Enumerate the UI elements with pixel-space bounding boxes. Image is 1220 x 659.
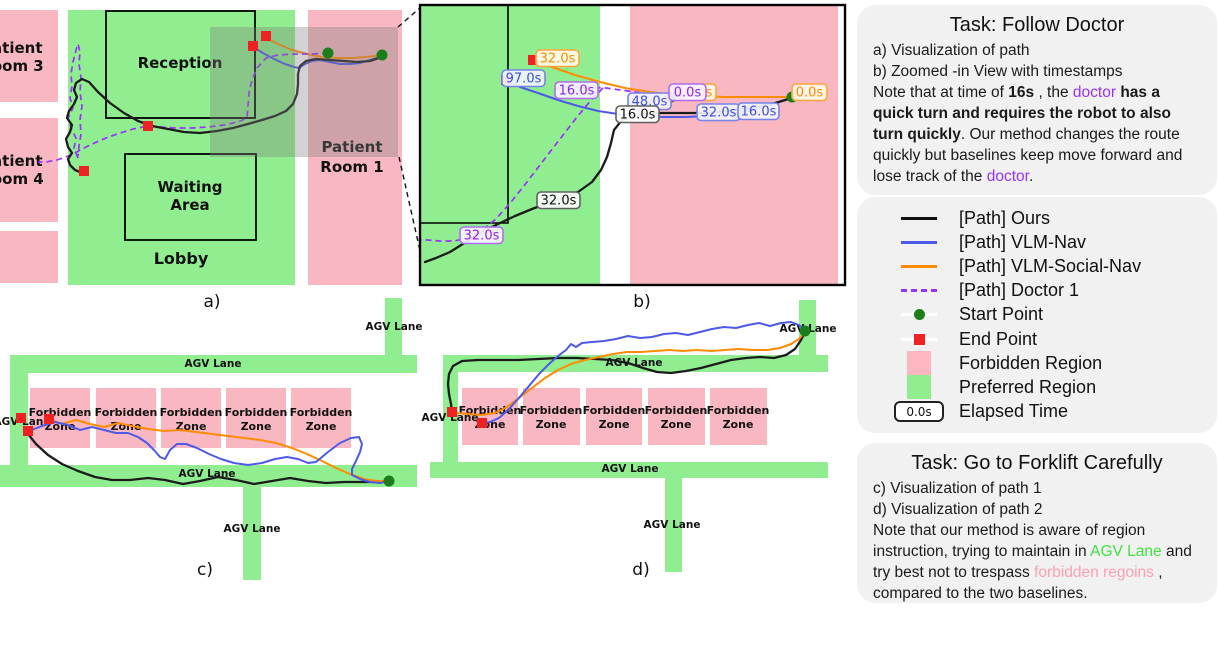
start-point	[377, 50, 388, 61]
room-label: Room 1	[320, 158, 383, 176]
end-point	[23, 426, 33, 436]
svg-text:Forbidden: Forbidden	[645, 404, 708, 417]
legend-item-path-vlm-nav: [Path] VLM-Nav	[857, 230, 1217, 254]
svg-text:Forbidden: Forbidden	[95, 406, 158, 419]
agv-lane-label: AGV Lane	[606, 357, 663, 369]
svg-text:32.0s: 32.0s	[540, 52, 576, 67]
dashed-line-swatch-purple	[901, 289, 937, 292]
svg-text:32.0s: 32.0s	[541, 194, 577, 209]
room-label: Patient	[0, 39, 43, 57]
task2-note: Note that our method is aware of region …	[873, 520, 1201, 604]
timestamp-label: 97.0s	[502, 70, 545, 87]
timestamp-label: 32.0s	[537, 192, 580, 209]
line-swatch-blue	[901, 241, 937, 244]
panel-caption-c: c)	[197, 560, 213, 580]
svg-text:Forbidden: Forbidden	[225, 406, 288, 419]
panel-caption-d: d)	[632, 560, 649, 580]
panel-a: Patient Room 3 Patient Room 4 Reception …	[0, 10, 402, 312]
svg-text:Zone: Zone	[599, 418, 630, 431]
task1-title: Task: Follow Doctor	[867, 14, 1207, 37]
end-point-icon	[914, 334, 925, 345]
start-point	[384, 476, 395, 487]
svg-text:Forbidden: Forbidden	[160, 406, 223, 419]
timestamp-label: 32.0s	[536, 50, 579, 67]
panel-caption-a: a)	[203, 292, 220, 312]
room-label: Patient	[0, 152, 43, 170]
end-point	[248, 41, 258, 51]
legend-item-path-ours: [Path] Ours	[857, 206, 1217, 230]
legend-card: [Path] Ours [Path] VLM-Nav [Path] VLM-So…	[857, 197, 1217, 433]
timestamp-label: 32.0s	[460, 227, 503, 244]
timestamp-label: 32.0s	[697, 104, 740, 121]
task1-card: Task: Follow Doctor a) Visualization of …	[857, 5, 1217, 195]
task1-line-b: b) Zoomed -in View with timestamps	[873, 61, 1201, 82]
timestamp-label: 0.0s	[669, 84, 706, 101]
end-point	[477, 418, 487, 428]
svg-text:Zone: Zone	[241, 420, 272, 433]
timestamp-label: 16.0s	[616, 106, 659, 123]
svg-text:32.0s: 32.0s	[701, 106, 737, 121]
legend-item-path-doctor: [Path] Doctor 1	[857, 279, 1217, 303]
end-point	[44, 414, 54, 424]
timestamp-label: 0.0s	[792, 84, 827, 101]
legend-item-end-point: End Point	[857, 327, 1217, 351]
room-label: Room 4	[0, 170, 44, 188]
svg-text:Forbidden: Forbidden	[520, 404, 583, 417]
legend-item-forbidden-region: Forbidden Region	[857, 351, 1217, 375]
agv-lane-label: AGV Lane	[224, 523, 281, 535]
task2-line-c: c) Visualization of path 1	[873, 478, 1201, 499]
svg-text:Forbidden: Forbidden	[583, 404, 646, 417]
agv-lane-label: AGV Lane	[644, 519, 701, 531]
elapsed-time-badge: 0.0s	[894, 401, 944, 422]
svg-text:Forbidden: Forbidden	[290, 406, 353, 419]
task1-line-a: a) Visualization of path	[873, 40, 1201, 61]
svg-text:97.0s: 97.0s	[506, 72, 542, 87]
task2-card: Task: Go to Forklift Carefully c) Visual…	[857, 443, 1217, 603]
room-label: Waiting	[157, 178, 222, 196]
svg-text:16.0s: 16.0s	[741, 105, 777, 120]
start-point-icon	[914, 309, 925, 320]
agv-lane-label: AGV Lane	[366, 321, 423, 333]
panel-caption-b: b)	[633, 292, 650, 312]
svg-text:Zone: Zone	[306, 420, 337, 433]
panel-c: AGV Lane AGV Lane AGV Lane AGV Lane AGV …	[0, 298, 422, 580]
forbidden-region	[630, 6, 838, 284]
line-swatch-orange	[901, 265, 937, 268]
room-label: Reception	[138, 54, 223, 72]
svg-text:Zone: Zone	[661, 418, 692, 431]
agv-lane-label: AGV Lane	[185, 358, 242, 370]
svg-text:16.0s: 16.0s	[559, 84, 595, 99]
forbidden-region	[0, 231, 58, 283]
svg-text:Zone: Zone	[723, 418, 754, 431]
timestamp-label: 16.0s	[738, 103, 779, 120]
legend-item-path-vlm-social-nav: [Path] VLM-Social-Nav	[857, 254, 1217, 278]
preferred-region-swatch	[907, 375, 931, 399]
task2-line-d: d) Visualization of path 2	[873, 499, 1201, 520]
line-swatch-black	[901, 217, 937, 220]
svg-text:32.0s: 32.0s	[464, 229, 500, 244]
room-label: Lobby	[154, 249, 209, 268]
panel-b: 32.0s 97.0s 16.0s 48.0s 0.0s 0.0s 0.0s 1…	[420, 5, 845, 312]
end-point	[16, 413, 26, 423]
room-label: Room 3	[0, 57, 44, 75]
figure-canvas: Patient Room 3 Patient Room 4 Reception …	[0, 0, 1220, 659]
agv-lane-label: AGV Lane	[602, 463, 659, 475]
end-point	[447, 407, 457, 417]
end-point	[261, 31, 271, 41]
svg-text:Forbidden: Forbidden	[707, 404, 770, 417]
task2-title: Task: Go to Forklift Carefully	[867, 452, 1207, 475]
task1-note: Note that at time of 16s , the doctor ha…	[873, 82, 1201, 187]
zoom-highlight-overlay	[210, 27, 398, 157]
svg-text:0.0s: 0.0s	[674, 86, 702, 101]
svg-text:Zone: Zone	[536, 418, 567, 431]
svg-text:Forbidden: Forbidden	[29, 406, 92, 419]
panel-d: AGV Lane AGV Lane AGV Lane AGV Lane AGV …	[422, 300, 837, 580]
start-point	[800, 326, 811, 337]
legend-item-start-point: Start Point	[857, 303, 1217, 327]
legend-item-elapsed-time: 0.0s Elapsed Time	[857, 400, 1217, 424]
end-point	[143, 121, 153, 131]
paths-figure: Patient Room 3 Patient Room 4 Reception …	[0, 0, 855, 600]
preferred-region	[421, 6, 600, 284]
start-point	[323, 48, 334, 59]
room-label: Area	[170, 196, 209, 214]
svg-text:16.0s: 16.0s	[620, 108, 656, 123]
end-point	[79, 166, 89, 176]
legend-item-preferred-region: Preferred Region	[857, 375, 1217, 399]
svg-text:0.0s: 0.0s	[796, 86, 824, 101]
timestamp-label: 16.0s	[555, 82, 598, 99]
forbidden-region-swatch	[907, 351, 931, 375]
